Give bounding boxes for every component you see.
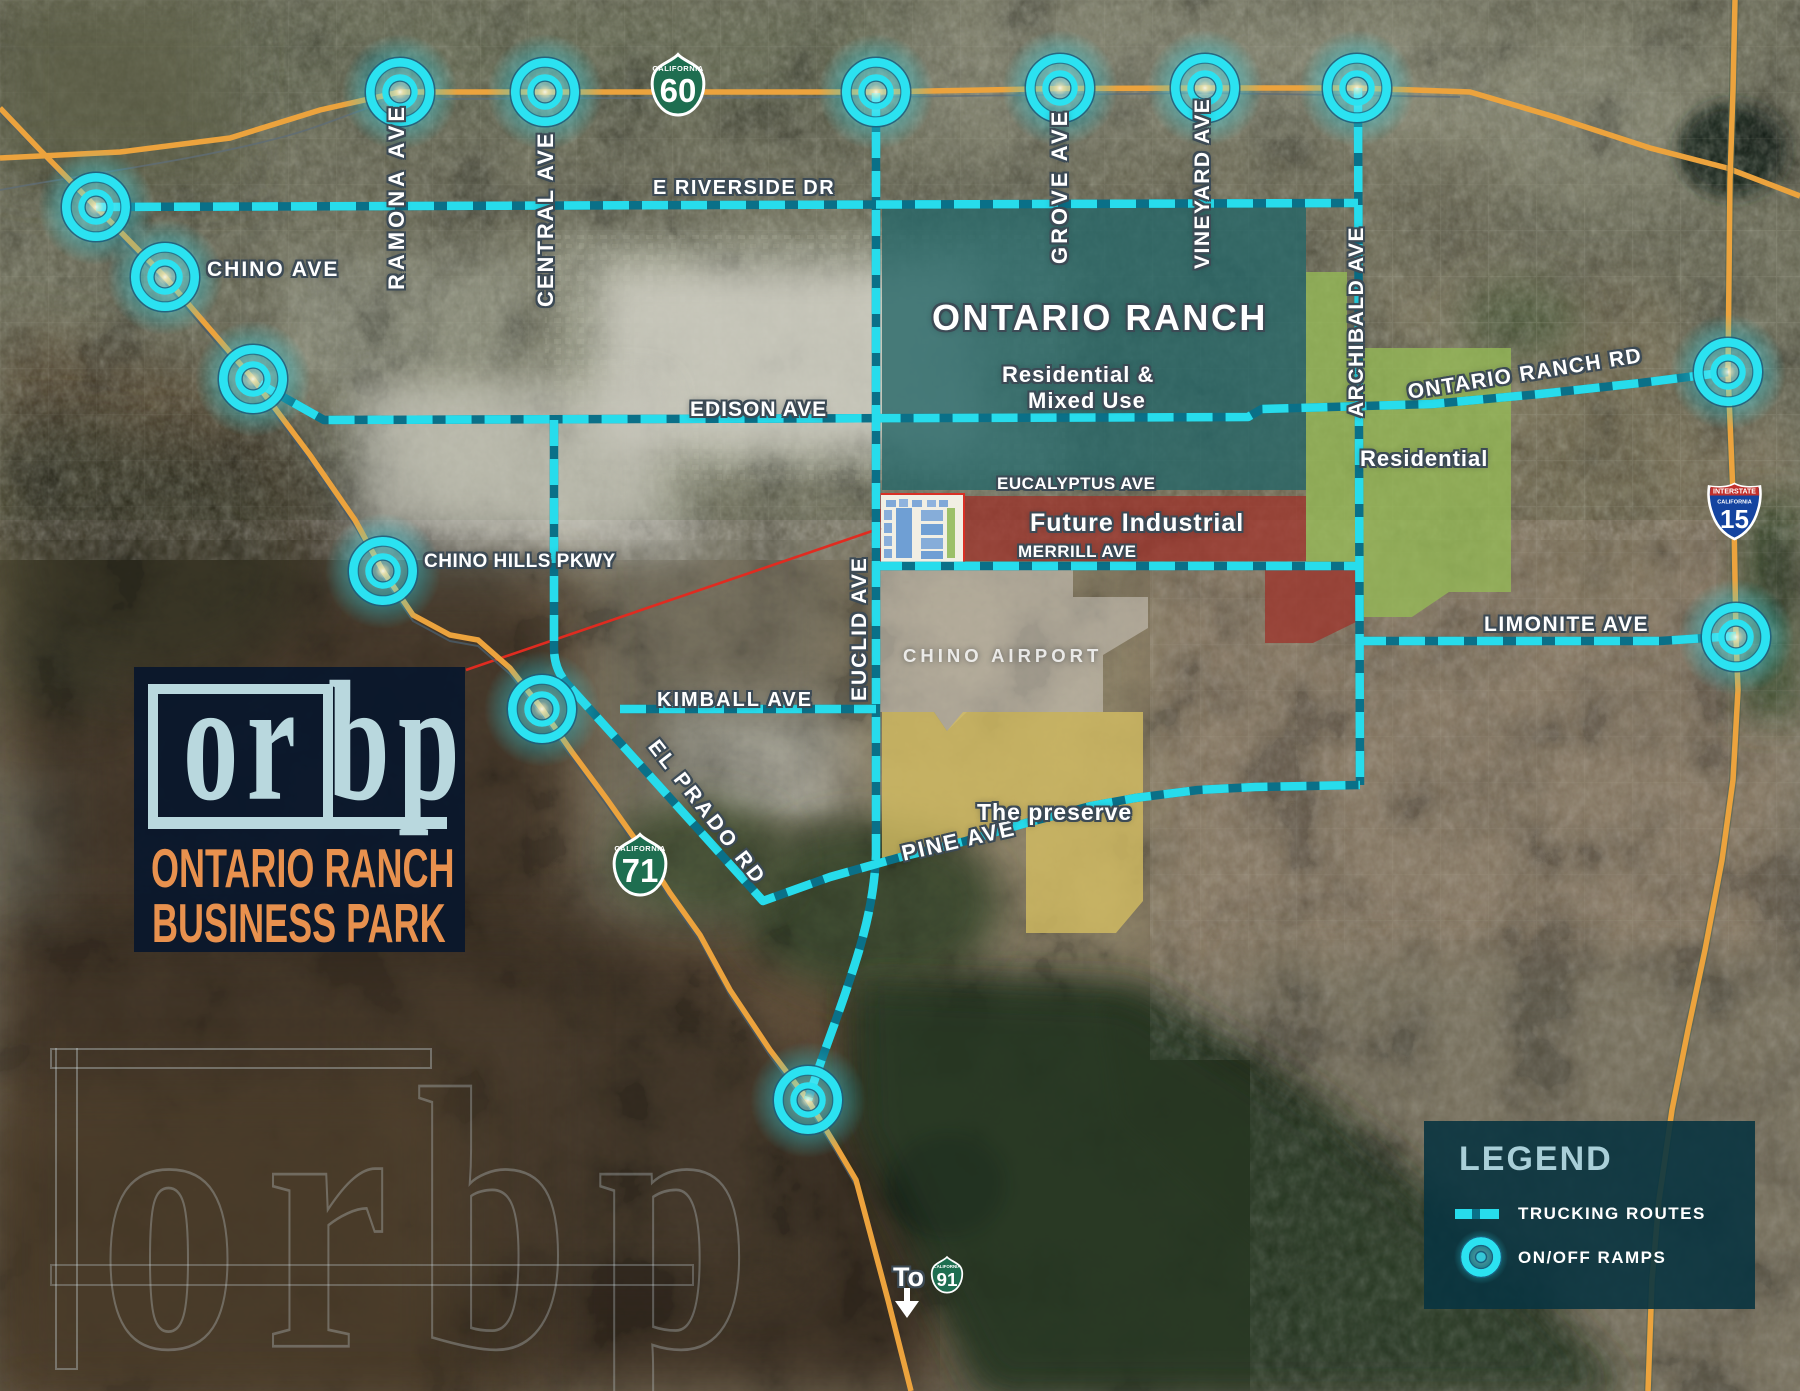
svg-text:60: 60 [660, 72, 697, 109]
svg-text:71: 71 [622, 852, 659, 889]
svg-text:CALIFORNIA: CALIFORNIA [933, 1264, 961, 1269]
svg-text:INTERSTATE: INTERSTATE [1713, 489, 1756, 496]
svg-text:91: 91 [937, 1269, 958, 1290]
svg-text:15: 15 [1720, 504, 1749, 534]
